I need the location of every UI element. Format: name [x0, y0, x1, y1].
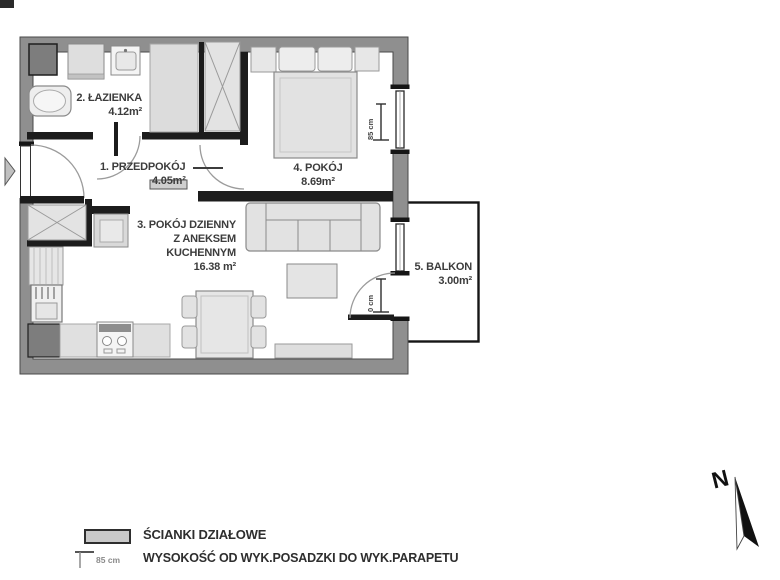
chair	[182, 296, 197, 318]
hall-wardrobe	[205, 42, 240, 131]
bedroom-name: 4. POKÓJ	[280, 161, 356, 175]
hall-label: 1. PRZEDPOKÓJ 4.05m²	[100, 160, 186, 188]
hall-name: 1. PRZEDPOKÓJ	[100, 160, 186, 174]
living-room-name-line2: Z ANEKSEM	[130, 232, 236, 246]
kitchen-sink-unit	[94, 214, 128, 247]
legend-height-value: 85 cm	[96, 555, 120, 565]
tv-stand	[275, 344, 352, 358]
living-room-name-line1: 3. POKÓJ DZIENNY	[130, 218, 236, 232]
legend-height-symbol	[75, 552, 94, 568]
bathroom-sink	[111, 46, 140, 75]
dimension-marker-85cm	[373, 104, 389, 140]
balcony-area: 3.00m²	[408, 274, 472, 288]
coffee-table	[287, 264, 337, 298]
double-bed	[274, 72, 357, 158]
chair	[182, 326, 197, 348]
living-room-label: 3. POKÓJ DZIENNY Z ANEKSEM KUCHENNYM 16.…	[130, 218, 236, 274]
chair	[251, 326, 266, 348]
nightstand	[251, 47, 276, 72]
bedroom-label: 4. POKÓJ 8.69m²	[280, 161, 356, 189]
living-room-name-line3: KUCHENNYM	[130, 246, 236, 260]
compass-needle-icon	[735, 477, 759, 549]
bathroom-area: 4.12m²	[60, 105, 142, 119]
chair	[251, 296, 266, 318]
balcony-door-sill-height: 0 cm	[366, 295, 375, 312]
legend-partition-symbol	[85, 530, 130, 543]
dimension-marker-0cm	[373, 279, 389, 312]
pillow	[279, 47, 315, 71]
shower	[150, 44, 198, 132]
fridge	[28, 324, 60, 357]
dining-table	[196, 291, 253, 358]
scan-artifact	[0, 0, 14, 8]
entrance-arrow-icon	[5, 158, 15, 185]
bedroom-window-sill-height: 85 cm	[366, 119, 375, 140]
nightstand	[355, 47, 379, 71]
floor-plan-drawing	[0, 0, 780, 580]
bedroom-area: 8.69m²	[280, 175, 356, 189]
balcony-name: 5. BALKON	[408, 260, 472, 274]
cooktop	[97, 322, 133, 357]
bathroom-label: 2. ŁAZIENKA 4.12m²	[60, 91, 142, 119]
bathroom-name: 2. ŁAZIENKA	[60, 91, 142, 105]
pillow	[318, 47, 352, 71]
sofa	[246, 203, 380, 251]
kitchen-counter-left	[29, 247, 63, 285]
entrance-door	[19, 142, 84, 199]
bedroom-furniture	[251, 47, 379, 158]
kitchen-closet	[28, 205, 86, 240]
balcony-label: 5. BALKON 3.00m²	[408, 260, 472, 288]
bathroom-sink-cabinet	[68, 44, 104, 79]
washing-machine	[29, 44, 57, 75]
floor-plan-page: 2. ŁAZIENKA 4.12m² 1. PRZEDPOKÓJ 4.05m² …	[0, 0, 780, 580]
legend-partition-label: ŚCIANKI DZIAŁOWE	[143, 527, 266, 542]
stove-oven	[31, 285, 62, 322]
hall-area: 4.05m²	[100, 174, 186, 188]
legend-height-label: WYSOKOŚĆ OD WYK.POSADZKI DO WYK.PARAPETU	[143, 551, 458, 565]
living-room-area: 16.38 m²	[130, 260, 236, 274]
